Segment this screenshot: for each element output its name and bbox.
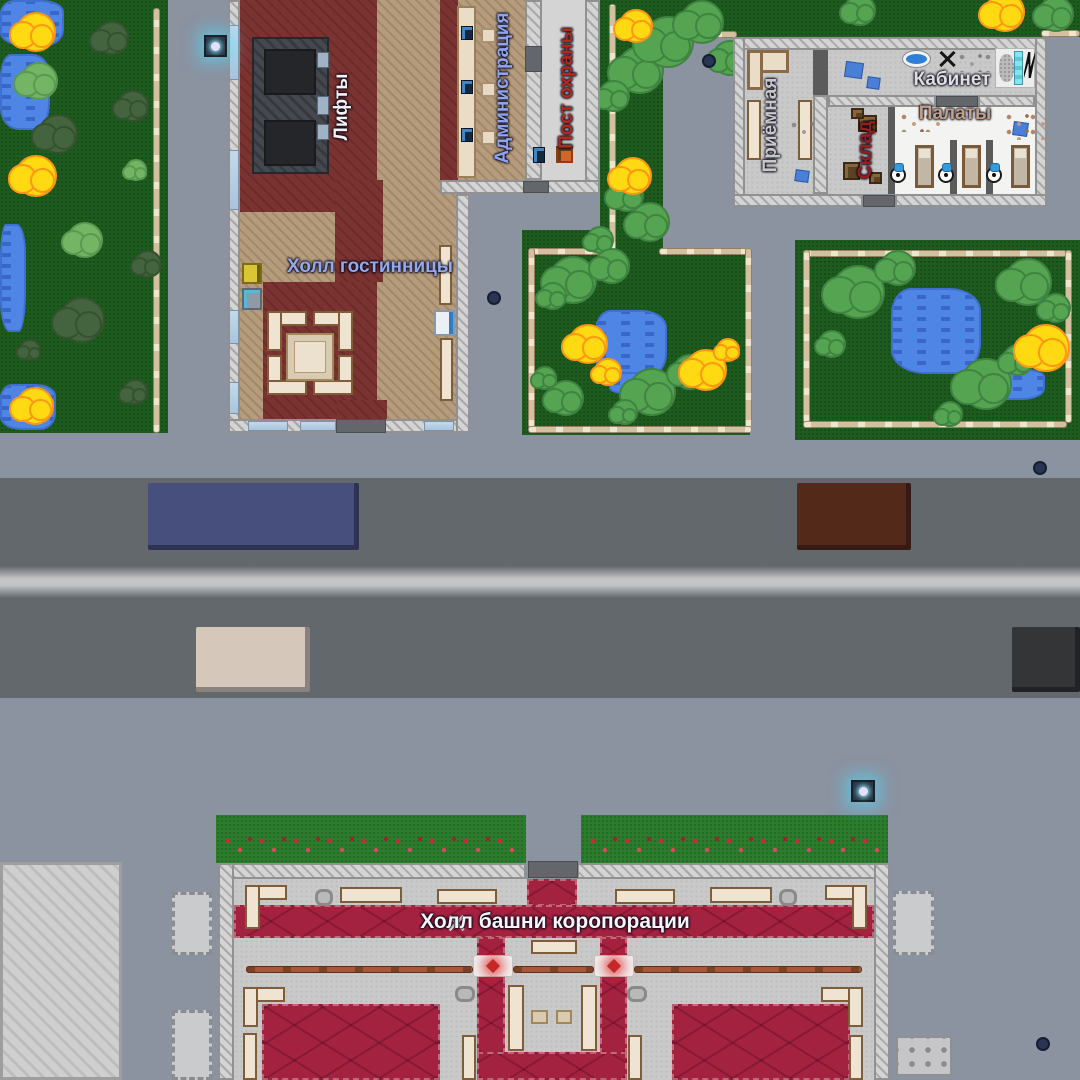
papers-blue (794, 169, 810, 183)
tree-bush-yellow (1022, 324, 1070, 372)
hospital-wall (733, 194, 863, 207)
label-wards: Палаты (919, 103, 991, 125)
planter (779, 889, 797, 906)
turnstile-gate[interactable] (473, 955, 513, 977)
planter (455, 986, 475, 1002)
planter (315, 889, 333, 906)
tree-lobe (999, 4, 1023, 28)
tree-lobe (893, 261, 915, 283)
tree-tree (19, 339, 41, 361)
label-administration: Администрация (492, 12, 514, 163)
tree-tree (630, 202, 670, 242)
vehicle-car-brown[interactable] (797, 483, 911, 550)
railing (634, 966, 862, 973)
scanner-strip (1014, 51, 1023, 85)
tree-lobe (33, 74, 56, 97)
debris (790, 120, 814, 136)
tree-tree (122, 379, 148, 405)
desk-monitor[interactable] (461, 128, 473, 142)
vending-machine[interactable] (434, 310, 455, 336)
hall-bench (508, 985, 524, 1051)
tree-lobe (29, 399, 52, 422)
window (229, 382, 239, 414)
hotel-wall (456, 194, 470, 433)
tree-lobe (849, 281, 881, 313)
flower-dots (222, 835, 520, 859)
tree-lobe (542, 374, 556, 388)
inner-wall (813, 50, 828, 95)
label-hotel-hall: Холл гостинницы (287, 256, 453, 278)
tree-tree (533, 366, 557, 390)
tree-lobe (561, 391, 583, 413)
fence (528, 426, 752, 433)
tree-tree (937, 401, 963, 427)
bollard (1033, 461, 1047, 475)
tree-lobe (144, 259, 161, 276)
annex-door[interactable] (523, 181, 549, 193)
hospital-bed (915, 145, 934, 188)
x-marker-icon (938, 50, 955, 67)
tree-tree (594, 248, 630, 284)
debris-blob (999, 54, 1014, 82)
lobby-bench (267, 311, 282, 351)
game-map: ЛифтыАдминистрацияПост охраныХолл гостин… (0, 0, 1080, 1080)
hall-wall (874, 863, 890, 1080)
elevator-door[interactable] (317, 124, 329, 140)
storage-crate (851, 108, 864, 119)
fence (803, 250, 810, 423)
window (248, 421, 288, 431)
hotel-wall (440, 180, 600, 194)
tree-bush-yellow (16, 387, 54, 425)
label-security-post: Пост охраны (556, 27, 578, 149)
iv-stand (986, 167, 1002, 183)
tree-lobe (1051, 7, 1073, 29)
tree-lobe (631, 20, 651, 40)
bollard (702, 54, 716, 68)
hospital-bed (1011, 145, 1030, 188)
window (229, 25, 239, 80)
hall-wall (218, 863, 526, 879)
planter (627, 986, 647, 1002)
railing (246, 966, 473, 973)
side-building (0, 862, 122, 1080)
label-storage: Склад (855, 121, 877, 179)
railing (513, 966, 594, 973)
lobby-platform-top (294, 341, 326, 373)
tree-lobe (582, 336, 606, 360)
hall-bench (243, 987, 258, 1027)
tree-tree (680, 0, 724, 44)
tree-lobe (828, 339, 845, 356)
red-carpet (672, 1004, 850, 1080)
tree-bush-yellow (594, 358, 622, 386)
tree-bush-yellow (614, 157, 652, 195)
vending-machine[interactable] (242, 263, 262, 284)
tree-tree (539, 282, 567, 310)
lobby-bench (440, 338, 453, 401)
hall-bench (243, 1033, 257, 1080)
window (300, 421, 336, 431)
tree-lobe (700, 362, 725, 387)
tree-lobe (75, 311, 103, 339)
tree-lobe (604, 367, 621, 384)
papers-blue (844, 61, 864, 79)
security-camera[interactable] (204, 35, 227, 57)
debris (1005, 112, 1047, 140)
table (556, 1010, 572, 1024)
tree-tree (612, 399, 638, 425)
tree-lobe (627, 169, 650, 192)
table (531, 1010, 548, 1024)
vehicle-car-beige[interactable] (196, 627, 310, 692)
pallet-platform (172, 1010, 212, 1080)
hall-bench (462, 1035, 476, 1080)
hall-bench (628, 1035, 642, 1080)
road-median-line (0, 566, 1080, 598)
lobby-bench (267, 380, 307, 395)
turnstile-gate[interactable] (594, 955, 634, 977)
tree-lobe (856, 4, 875, 23)
tree-tree (1041, 293, 1071, 323)
tree-bush (67, 222, 103, 258)
pallet-platform (893, 891, 934, 955)
tree-lobe (607, 259, 629, 281)
ticket-machine[interactable] (242, 288, 262, 310)
security-monitor[interactable] (533, 147, 545, 163)
tree-lobe (52, 126, 76, 150)
hall-bench (437, 889, 497, 904)
label-reception: Приёмная (760, 78, 782, 173)
hospital-wall (733, 37, 745, 207)
elevator-shaft (264, 49, 316, 95)
tree-bush-yellow (619, 9, 653, 43)
tree-lobe (80, 233, 102, 255)
hall-bench (848, 987, 863, 1027)
hospital-wall (813, 95, 828, 194)
elevator-door[interactable] (317, 52, 329, 68)
drain-grate (896, 1036, 952, 1076)
security-door[interactable] (525, 46, 542, 72)
tree-lobe (695, 13, 721, 39)
tree-lobe (30, 168, 55, 193)
fence (803, 250, 1067, 257)
security-camera[interactable] (851, 780, 875, 802)
tree-bush-yellow (716, 338, 740, 362)
tree-lobe (978, 373, 1009, 404)
tree-lobe (1038, 338, 1067, 367)
pallet-platform (172, 892, 212, 955)
elevator-panel[interactable] (317, 96, 329, 115)
hall-bench (710, 887, 772, 903)
pond (891, 288, 981, 374)
tree-lobe (549, 291, 566, 308)
window (424, 421, 454, 431)
bollard (487, 291, 501, 305)
red-carpet (262, 1004, 440, 1080)
tree-bush (20, 62, 58, 100)
hotel-carpet (440, 0, 458, 192)
tree-tree (818, 330, 846, 358)
window (229, 150, 239, 210)
tree-tree (95, 21, 129, 55)
hospital-bed (962, 145, 981, 188)
pond (0, 224, 26, 332)
tree-tree (134, 250, 162, 278)
lobby-bench (338, 311, 353, 351)
iv-stand (890, 167, 906, 183)
hospital-wall (895, 194, 1047, 207)
hall-entrance[interactable] (528, 861, 578, 878)
tree-bush-yellow (15, 155, 57, 197)
label-office: Кабинет (914, 69, 991, 91)
desk-monitor[interactable] (461, 80, 473, 94)
tree-lobe (134, 167, 147, 180)
hotel-door[interactable] (336, 419, 386, 433)
vehicle-car-dark[interactable] (1012, 627, 1080, 692)
tree-tree (598, 80, 630, 112)
hall-bench (245, 885, 260, 929)
bollard (1036, 1037, 1050, 1051)
waiting-bench (747, 100, 761, 160)
hall-bench (581, 985, 597, 1051)
vehicle-bus[interactable] (148, 483, 359, 550)
desk-monitor[interactable] (461, 26, 473, 40)
tree-lobe (644, 214, 668, 238)
red-carpet (477, 1052, 627, 1080)
fence (609, 4, 616, 250)
label-elevators: Лифты (331, 74, 353, 141)
hall-bench (531, 940, 577, 954)
tree-lobe (28, 347, 41, 360)
tree-tree (38, 114, 78, 154)
hall-bench (849, 1035, 863, 1080)
hall-wall (577, 863, 890, 879)
tree-lobe (107, 32, 127, 52)
hospital-door[interactable] (863, 195, 895, 207)
hall-bench (615, 889, 675, 904)
tree-lobe (610, 90, 629, 109)
tree-lobe (1052, 303, 1070, 321)
tree-lobe (129, 100, 148, 119)
tree-tree (59, 297, 105, 343)
red-carpet (527, 879, 577, 906)
elevator-shaft (264, 120, 316, 166)
iv-stand (938, 167, 954, 183)
sink (903, 51, 930, 67)
hotel-wall (585, 0, 600, 194)
label-corporate-hall: Холл башни коропорации (420, 910, 690, 934)
fence (153, 8, 160, 433)
window (229, 310, 239, 344)
tree-tree (117, 90, 149, 122)
tree-lobe (725, 346, 739, 360)
flower-dots (587, 835, 882, 859)
tree-lobe (644, 382, 673, 411)
tree-tree (880, 250, 916, 286)
tree-lobe (30, 24, 54, 48)
papers-blue (866, 76, 881, 90)
hall-wall (218, 863, 234, 1080)
tree-bush (125, 159, 147, 181)
hall-bench (852, 885, 867, 929)
lobby-bench (313, 380, 353, 395)
fence (745, 248, 752, 428)
hall-bench (340, 887, 402, 903)
fence (528, 248, 535, 428)
tree-bush-yellow (16, 12, 56, 52)
fence (659, 248, 747, 255)
